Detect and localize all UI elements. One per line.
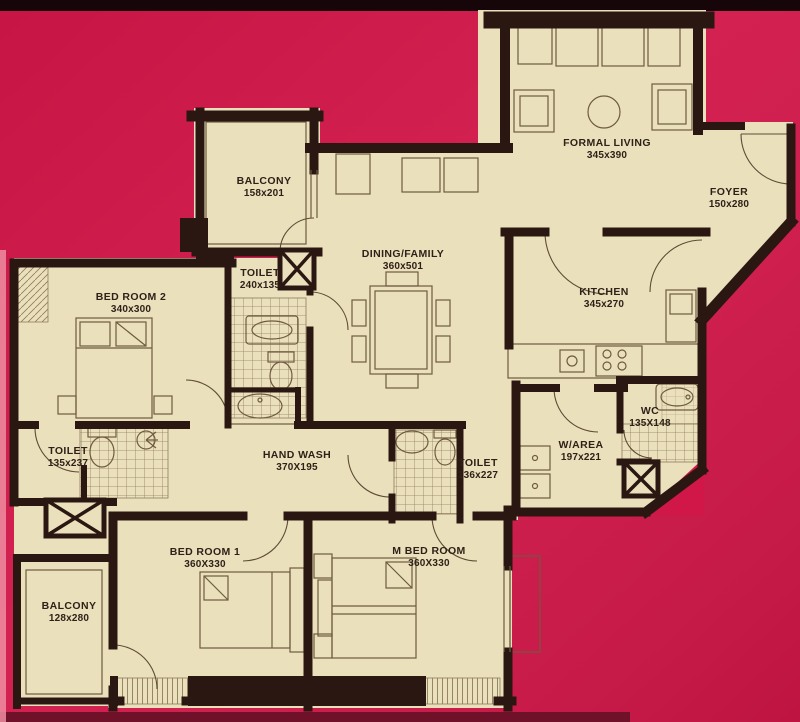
- room-label-toilet-left: TOILET 135x237: [48, 445, 88, 471]
- room-label-formal-living: FORMAL LIVING 345x390: [563, 137, 651, 163]
- top-band: [0, 0, 800, 11]
- room-dims: 370X195: [263, 462, 331, 475]
- room-dims: 345x390: [563, 150, 651, 163]
- room-dims: 340x300: [96, 304, 167, 317]
- room-name: KITCHEN: [579, 286, 628, 298]
- room-dims: 150x280: [709, 199, 749, 212]
- room-name: W/AREA: [559, 439, 604, 451]
- left-edge-strip: [0, 250, 6, 722]
- room-label-bed-room-1: BED ROOM 1 360X330: [170, 546, 241, 572]
- room-label-toilet-top: TOILET 240x135: [240, 267, 280, 293]
- room-name: BALCONY: [42, 600, 97, 612]
- room-label-dining-family: DINING/FAMILY 360x501: [362, 248, 444, 274]
- room-dims: 197x221: [559, 452, 604, 465]
- floor-plan-drawing: [0, 0, 800, 722]
- room-dims: 360X330: [392, 558, 465, 571]
- room-dims: 128x280: [42, 613, 97, 626]
- room-name: HAND WASH: [263, 449, 331, 461]
- room-name: TOILET: [48, 445, 88, 457]
- room-label-bed-room-2: BED ROOM 2 340x300: [96, 291, 167, 317]
- room-label-w-area: W/AREA 197x221: [559, 439, 604, 465]
- room-dims: 360X330: [170, 559, 241, 572]
- room-label-kitchen: KITCHEN 345x270: [579, 286, 628, 312]
- room-name: BALCONY: [237, 175, 292, 187]
- room-dims: 345x270: [579, 299, 628, 312]
- room-name: FOYER: [710, 186, 748, 198]
- room-label-wc: WC 135X148: [629, 405, 670, 431]
- room-dims: 158x201: [237, 188, 292, 201]
- window-sill: [116, 678, 188, 704]
- room-name: WC: [641, 405, 659, 417]
- bottom-band: [0, 712, 630, 722]
- wardrobe-icon: [16, 266, 48, 322]
- room-label-hand-wash: HAND WASH 370X195: [263, 449, 331, 475]
- room-label-m-bed-room: M BED ROOM 360X330: [392, 545, 465, 571]
- room-name: TOILET: [240, 267, 280, 279]
- window-sill: [424, 678, 500, 704]
- room-name: M BED ROOM: [392, 545, 465, 557]
- room-dims: 135X148: [629, 418, 670, 431]
- floor-plan-page: BALCONY 158x201 FORMAL LIVING 345x390 FO…: [0, 0, 800, 722]
- room-name: BED ROOM 1: [170, 546, 241, 558]
- room-dims: 240x135: [240, 280, 280, 293]
- room-dims: 360x501: [362, 261, 444, 274]
- room-label-foyer: FOYER 150x280: [709, 186, 749, 212]
- room-label-toilet-mid: TOILET 136x227: [458, 457, 498, 483]
- room-name: DINING/FAMILY: [362, 248, 444, 260]
- room-label-balcony-top: BALCONY 158x201: [237, 175, 292, 201]
- room-name: FORMAL LIVING: [563, 137, 651, 149]
- room-name: TOILET: [458, 457, 498, 469]
- room-name: BED ROOM 2: [96, 291, 167, 303]
- room-dims: 136x227: [458, 470, 498, 483]
- room-label-balcony-bottom: BALCONY 128x280: [42, 600, 97, 626]
- room-dims: 135x237: [48, 458, 88, 471]
